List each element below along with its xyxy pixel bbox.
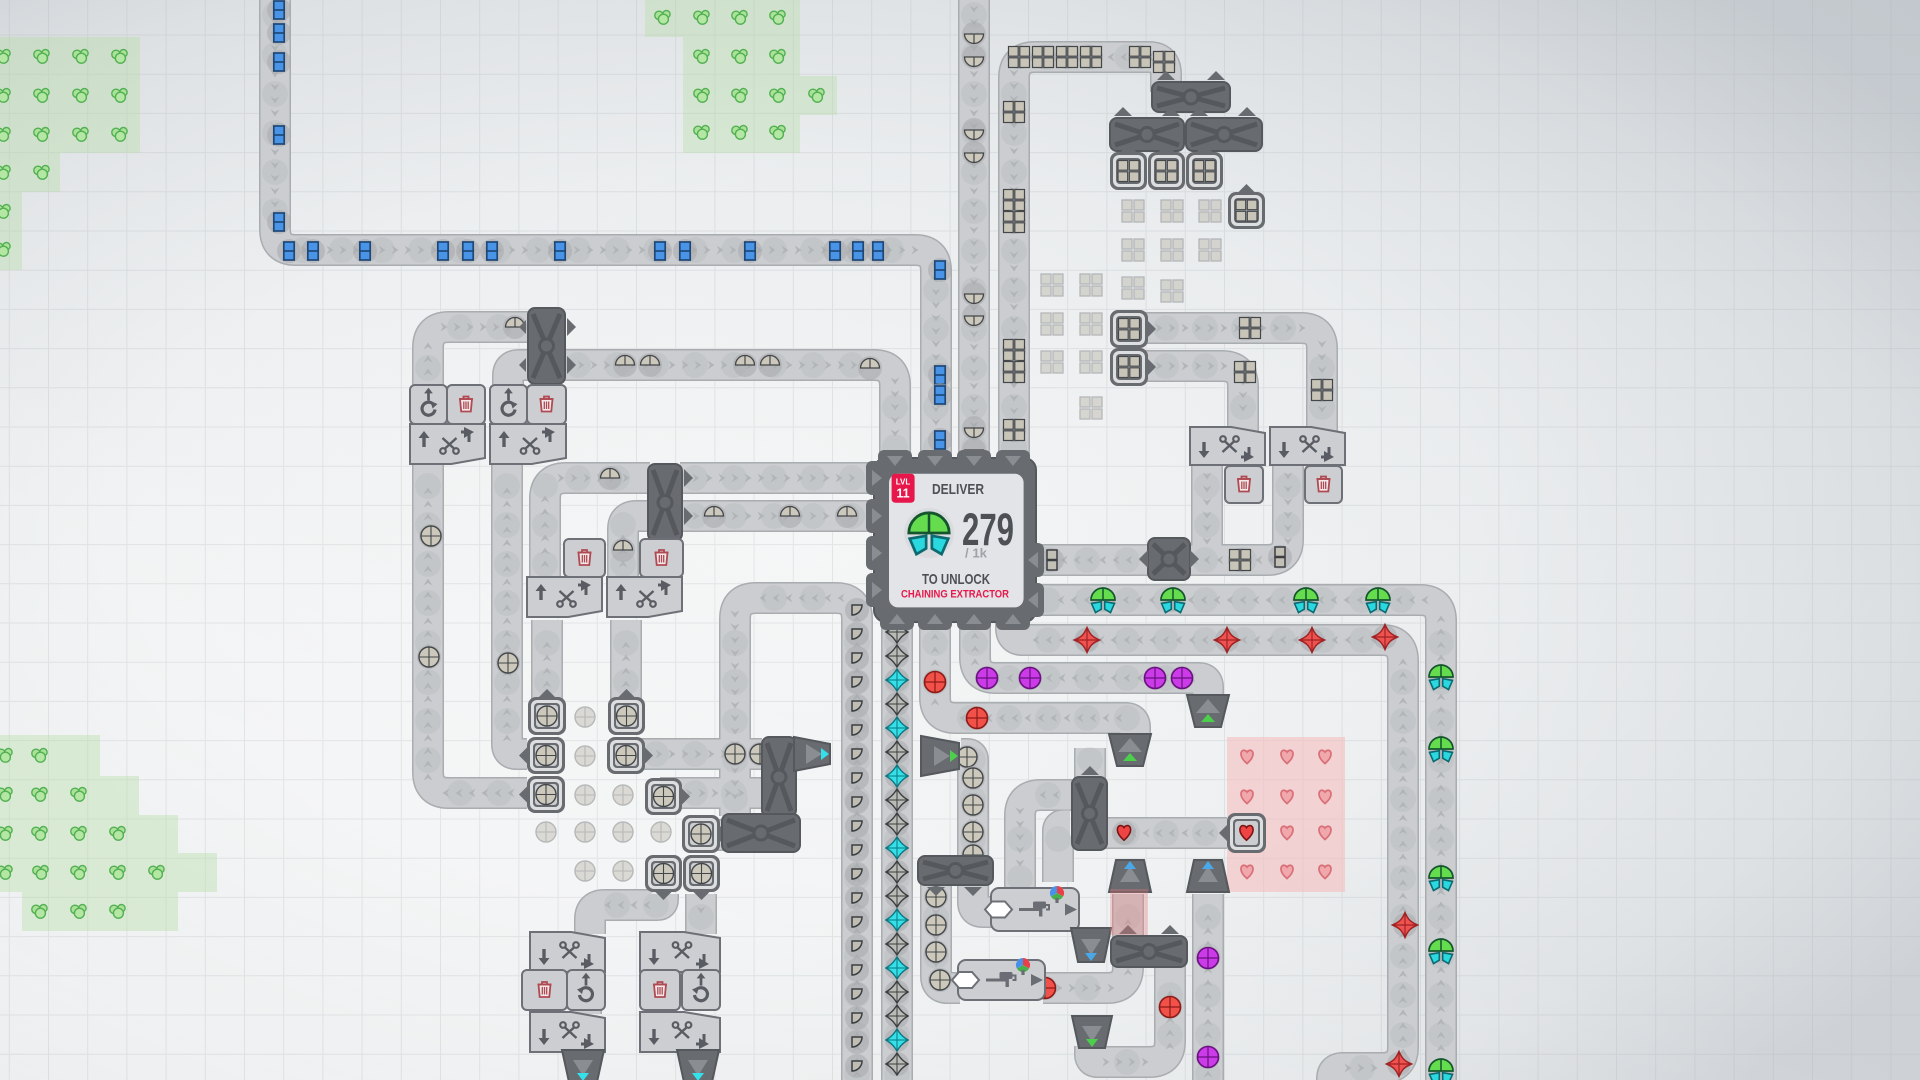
svg-text:CHAINING EXTRACTOR: CHAINING EXTRACTOR bbox=[901, 589, 1009, 601]
svg-text:DELIVER: DELIVER bbox=[932, 482, 984, 498]
svg-text:/ 1k: / 1k bbox=[965, 546, 988, 561]
svg-text:LVL: LVL bbox=[896, 478, 911, 487]
svg-text:TO UNLOCK: TO UNLOCK bbox=[922, 571, 990, 588]
svg-text:11: 11 bbox=[896, 487, 909, 501]
